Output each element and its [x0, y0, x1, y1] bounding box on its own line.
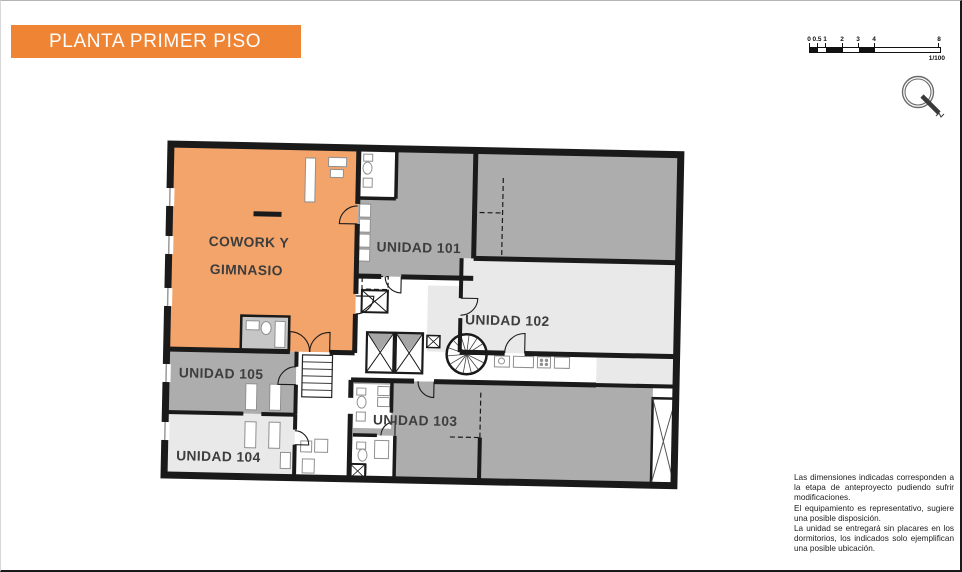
disclaimer-paragraph: La unidad se entregará sin placares en l…: [794, 524, 954, 555]
label-cowork-line2: GIMNASIO: [210, 262, 283, 279]
label-unidad-104: UNIDAD 104: [176, 448, 261, 465]
cowork-bathroom: [241, 316, 290, 353]
brochure-page: PLANTA PRIMER PISO 0 0.5 1 2 3 4 8 1/100: [0, 0, 962, 572]
cowork-wall-stub: [254, 214, 282, 215]
disclaimer-paragraph: El equipamiento es representativo, sugie…: [794, 504, 954, 524]
room-unidad-102-c: [596, 355, 677, 387]
disclaimer-paragraph: Las dimensiones indicadas corresponden a…: [794, 473, 954, 504]
stair-icon: [302, 355, 333, 398]
label-unidad-102: UNIDAD 102: [465, 312, 550, 329]
room-unidad-101-b: [474, 153, 681, 262]
label-cowork-line1: COWORK Y: [209, 234, 290, 251]
label-unidad-103: UNIDAD 103: [373, 412, 458, 429]
label-unidad-105: UNIDAD 105: [179, 365, 264, 382]
label-unidad-101: UNIDAD 101: [376, 239, 461, 256]
room-unidad-102: [460, 258, 679, 357]
disclaimer-text: Las dimensiones indicadas corresponden a…: [794, 473, 954, 554]
